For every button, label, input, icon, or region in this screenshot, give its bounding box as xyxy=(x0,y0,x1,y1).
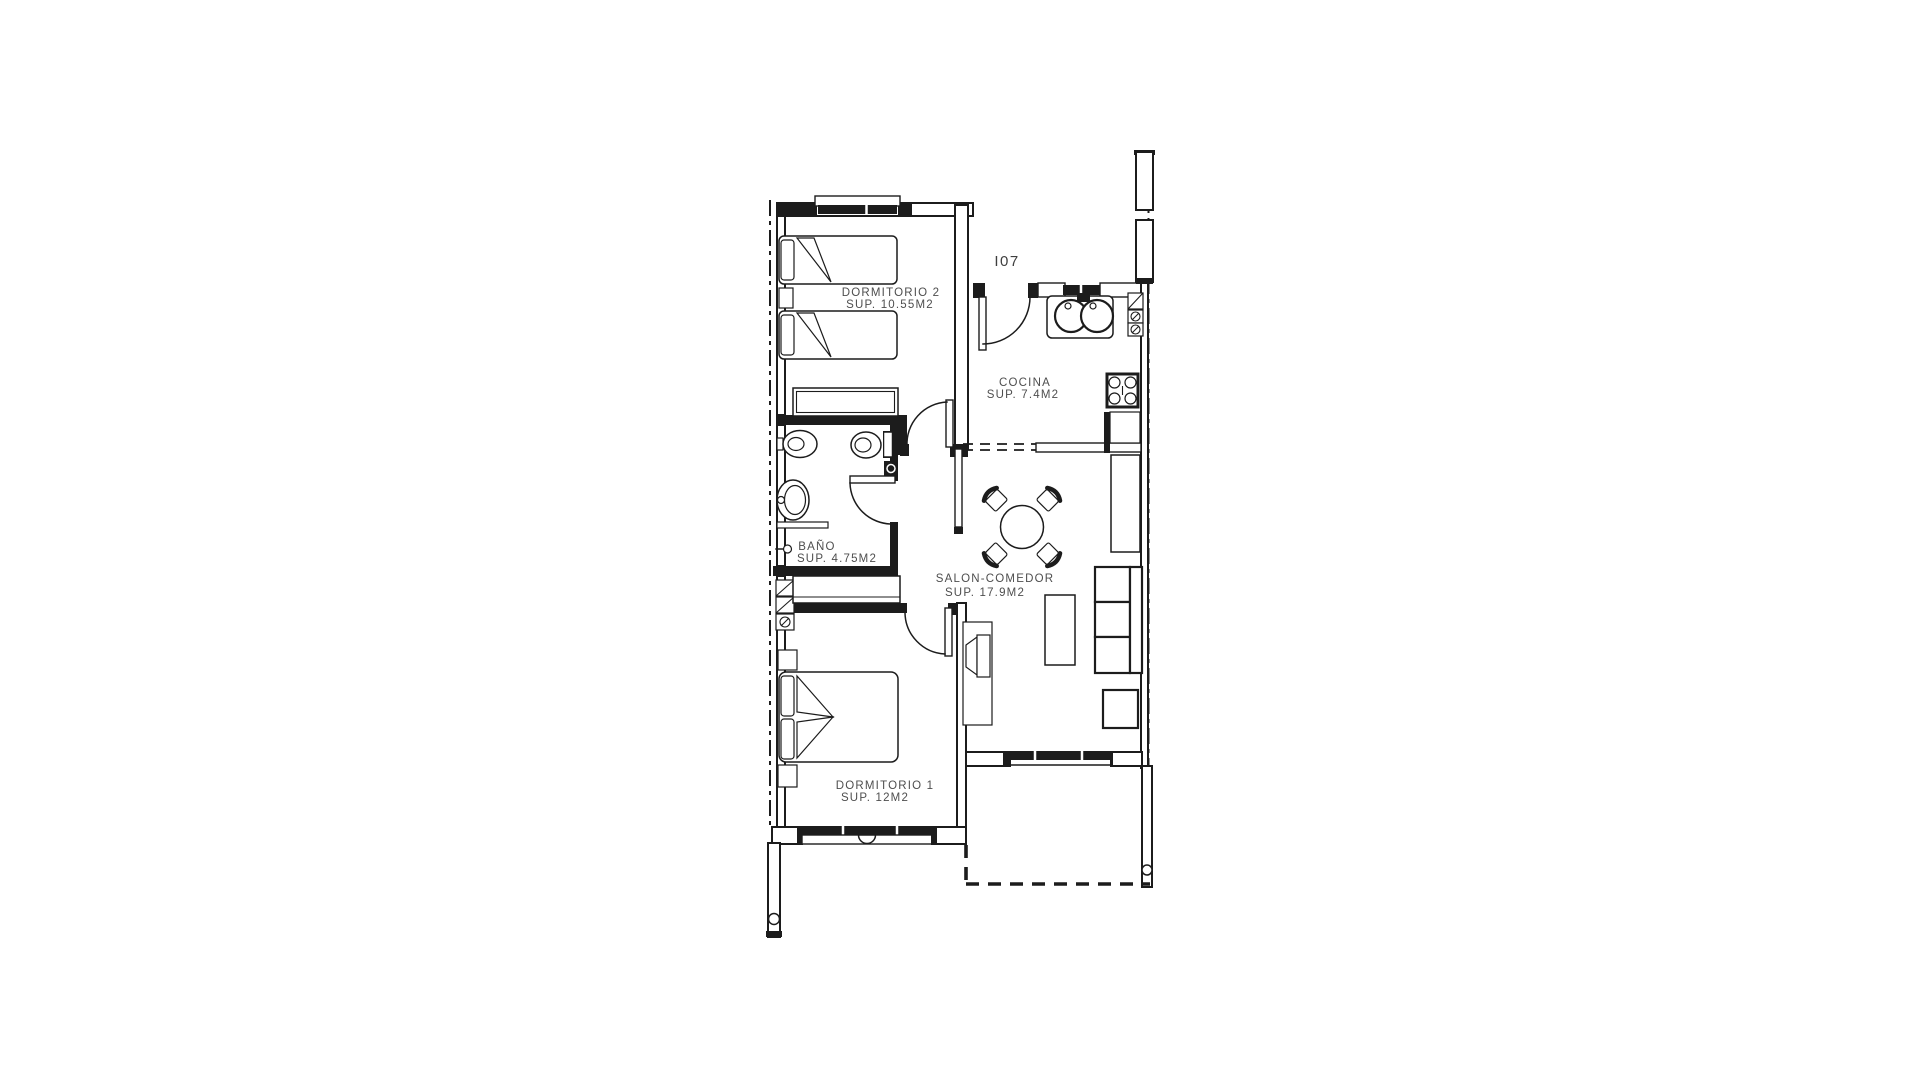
wall-bathroom-bottom xyxy=(773,566,898,576)
side-table xyxy=(1103,690,1138,728)
label-cocina-name: COCINA xyxy=(999,377,1051,389)
label-salon-name: SALON-COMEDOR xyxy=(936,573,1054,585)
sliding-door-terrace xyxy=(1005,751,1112,760)
label-dormitorio1-name: DORMITORIO 1 xyxy=(836,780,935,792)
nightstand xyxy=(778,650,797,670)
bathroom-door-swing xyxy=(850,483,892,524)
wall-kitchen-bottom xyxy=(1036,443,1141,452)
drain-symbol xyxy=(784,545,792,553)
entrance-jamb-right xyxy=(1028,283,1038,298)
pillow xyxy=(781,240,794,280)
tv-screen xyxy=(977,635,990,677)
dormitorio2-door-leaf xyxy=(946,400,953,447)
nightstand xyxy=(779,288,793,308)
label-bano-area: SUP. 4.75M2 xyxy=(797,553,877,565)
entrance-door-swing xyxy=(983,297,1030,344)
kitchen-fixtures xyxy=(1047,293,1143,453)
wardrobe-dormitorio1 xyxy=(793,576,900,603)
dining-chair xyxy=(982,542,1008,568)
bathroom-fixtures xyxy=(776,431,898,554)
nightstand xyxy=(778,765,797,787)
service-shafts xyxy=(776,580,794,630)
vanity-counter xyxy=(777,522,828,528)
sofa-cushion xyxy=(1095,567,1130,602)
sink-tap xyxy=(1077,293,1090,302)
sofa-cushion xyxy=(1095,602,1130,637)
label-dormitorio2-name: DORMITORIO 2 xyxy=(842,287,941,299)
water-heater xyxy=(884,461,898,476)
floor-plan-drawing: DORMITORIO 2 SUP. 10.55M2 I07 COCINA SUP… xyxy=(0,0,1920,1080)
burner xyxy=(1125,377,1136,388)
dormitorio2-door-swing xyxy=(907,402,947,446)
floor-plan-page: DORMITORIO 2 SUP. 10.55M2 I07 COCINA SUP… xyxy=(0,0,1920,1080)
sofa-cushion xyxy=(1095,637,1130,673)
wall-dormitorio2-right xyxy=(955,205,968,449)
burner xyxy=(1109,377,1120,388)
label-dormitorio2-area: SUP. 10.55M2 xyxy=(846,299,934,311)
bathroom-door-leaf xyxy=(850,476,895,483)
wardrobe-dormitorio2 xyxy=(793,388,898,416)
pillow xyxy=(781,676,794,716)
dormitorio2-furniture xyxy=(779,236,898,416)
sofa-backrest xyxy=(1130,567,1142,673)
label-unit-number: I07 xyxy=(994,253,1019,270)
entrance-jamb-left xyxy=(973,283,985,298)
single-bed-2 xyxy=(779,311,897,359)
label-salon-area: SUP. 17.9M2 xyxy=(945,587,1025,599)
wall-east xyxy=(1141,283,1148,768)
fridge xyxy=(1110,412,1140,443)
sink-bowl xyxy=(1081,300,1113,332)
wall-hall-salon xyxy=(955,449,962,527)
pillow xyxy=(781,719,794,759)
window-dormitorio1 xyxy=(802,826,932,835)
label-dormitorio1-area: SUP. 12M2 xyxy=(841,792,909,804)
dining-chair xyxy=(1036,542,1062,568)
tap xyxy=(778,497,785,504)
dining-table xyxy=(1001,506,1044,549)
window-dormitorio2 xyxy=(815,196,900,206)
label-bano-name: BAÑO xyxy=(798,540,835,553)
sofa-armrest xyxy=(1111,455,1140,552)
burner xyxy=(1125,393,1136,404)
burner xyxy=(1109,393,1120,404)
dormitorio1-door-leaf xyxy=(945,608,952,656)
pillow xyxy=(781,315,794,355)
wall-dormitorio1-top xyxy=(793,603,907,613)
entrance-door-leaf xyxy=(979,297,986,350)
wall-strip-topright xyxy=(1136,152,1153,210)
single-bed-1 xyxy=(779,236,897,284)
label-cocina-area: SUP. 7.4M2 xyxy=(987,389,1060,401)
dining-chair xyxy=(1036,486,1062,512)
dining-chair xyxy=(982,486,1008,512)
coffee-table xyxy=(1045,595,1075,665)
dormitorio1-door-swing xyxy=(905,613,945,654)
